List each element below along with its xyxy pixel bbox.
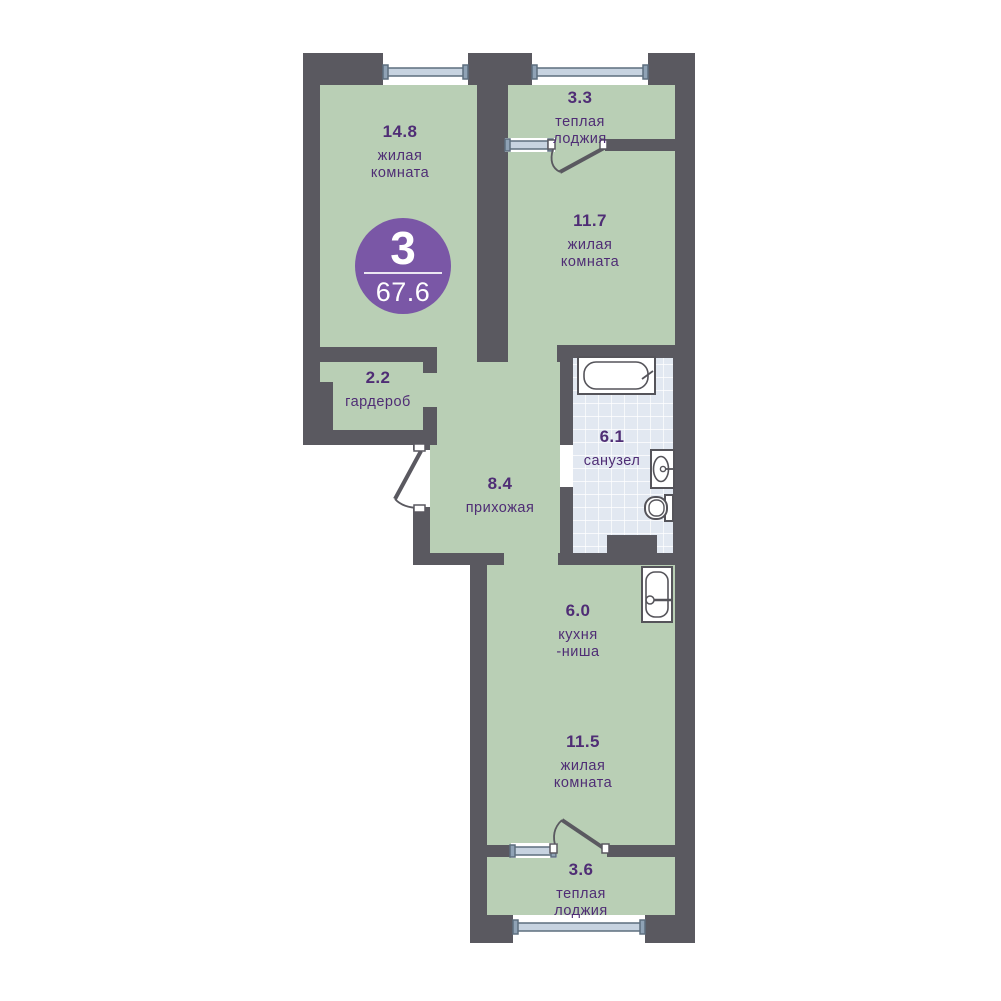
floor-hall	[437, 362, 560, 553]
kitchen-sink-icon	[642, 567, 672, 622]
bathtub-icon	[578, 357, 655, 394]
opening-wardrobe	[423, 373, 437, 407]
window-loggia-top	[505, 139, 553, 151]
floor-loggia-top	[508, 85, 675, 139]
total-area: 67.6	[376, 278, 431, 306]
opening-hall-living	[508, 345, 557, 362]
toilet-icon	[645, 495, 673, 521]
floorplan-drawing	[0, 0, 1001, 1001]
floor-loggia-bottom	[487, 857, 675, 915]
window-loggia-bottom	[510, 845, 556, 857]
bathroom-wall-step	[607, 535, 657, 553]
opening-loggia-top-door	[553, 139, 605, 151]
sink-icon	[651, 450, 674, 488]
badge-divider	[364, 272, 442, 274]
bathroom-door-opening	[560, 445, 573, 487]
floorplan-page: 3 67.6 14.8 жилая комната 3.3 теплая лод…	[0, 0, 1001, 1001]
apartment-badge: 3 67.6	[355, 218, 451, 314]
floor-wardrobe	[320, 362, 423, 430]
floor-living-11-7	[508, 151, 675, 345]
opening-living-hall	[437, 347, 477, 362]
wardrobe-wall-notch	[320, 382, 333, 430]
opening-hall-kitchen	[504, 553, 558, 565]
rooms-count: 3	[390, 227, 416, 269]
